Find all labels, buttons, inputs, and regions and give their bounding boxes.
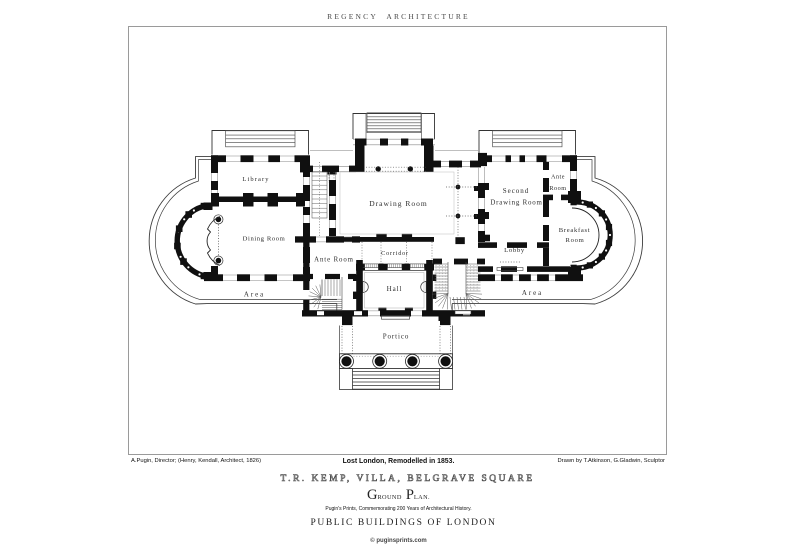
svg-text:Ante: Ante — [551, 174, 565, 181]
svg-text:Area: Area — [522, 289, 543, 297]
svg-text:Drawing Room: Drawing Room — [369, 199, 427, 208]
svg-text:Library: Library — [242, 176, 269, 183]
svg-text:Area: Area — [244, 291, 265, 299]
svg-text:Second: Second — [503, 187, 530, 195]
svg-text:Drawing Room: Drawing Room — [490, 200, 542, 207]
svg-text:Dining Room: Dining Room — [243, 236, 286, 243]
svg-text:Portico: Portico — [383, 333, 410, 341]
svg-text:Room: Room — [566, 237, 585, 244]
svg-text:Hall: Hall — [387, 285, 403, 293]
svg-text:Ante Room: Ante Room — [314, 257, 354, 264]
svg-text:Room: Room — [549, 185, 566, 192]
svg-text:Corridor: Corridor — [381, 250, 409, 257]
svg-text:Breakfast: Breakfast — [559, 227, 591, 234]
svg-text:Lobby: Lobby — [504, 247, 525, 254]
